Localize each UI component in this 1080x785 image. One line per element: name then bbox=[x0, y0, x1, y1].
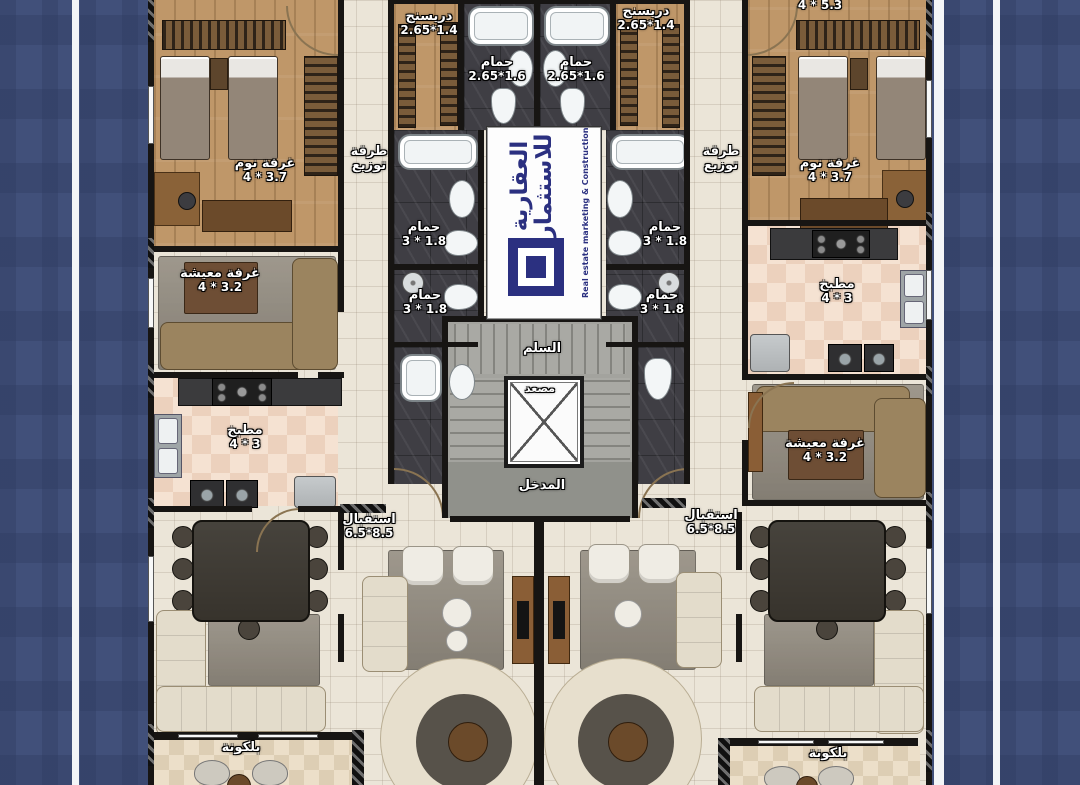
fridge bbox=[294, 476, 336, 508]
window bbox=[148, 278, 154, 328]
label-bath-main-right: حمام 2.65*1.6 bbox=[547, 56, 604, 83]
dining-chair bbox=[172, 590, 194, 612]
room-name: توزيع bbox=[351, 159, 388, 173]
label-kitchen-right: مطبخ 4 * 3 bbox=[819, 278, 854, 305]
hatched-wall bbox=[148, 0, 154, 42]
wall bbox=[606, 342, 690, 347]
tv-console bbox=[202, 200, 292, 232]
hatched-wall bbox=[926, 0, 932, 42]
balcony-chair bbox=[764, 766, 800, 785]
window bbox=[148, 556, 154, 622]
armchair bbox=[402, 546, 444, 586]
balcony-chair bbox=[194, 760, 230, 785]
door-arc bbox=[256, 508, 300, 552]
company-logo-arabic-name: العقارية للاستثمار bbox=[508, 131, 564, 241]
dining-chair bbox=[172, 558, 194, 580]
room-dims: 2.65*1.4 bbox=[400, 24, 457, 37]
dining-chair bbox=[884, 526, 906, 548]
window bbox=[828, 740, 884, 744]
room-name: طرقة bbox=[351, 145, 388, 159]
label-bedroom-right: غرفة نوم 4 * 3.7 bbox=[800, 157, 860, 184]
hatched-wall bbox=[148, 724, 154, 766]
label-bath2-right: حمام 3 * 1.8 bbox=[640, 289, 684, 316]
room-dims: 4 * 3.2 bbox=[785, 451, 865, 464]
room-dims: 4 * 3 bbox=[227, 438, 262, 451]
label-reception-right: استقبال 6.5*8.5 bbox=[684, 509, 737, 536]
bidet bbox=[449, 364, 475, 400]
room-name: بلكونة bbox=[809, 747, 848, 761]
background-building-left bbox=[0, 0, 72, 785]
sofa bbox=[292, 258, 338, 370]
window bbox=[926, 80, 932, 138]
wardrobe bbox=[620, 22, 638, 126]
wardrobe bbox=[796, 20, 920, 50]
label-bath1-right: حمام 3 * 1.8 bbox=[643, 221, 687, 248]
wall bbox=[742, 0, 748, 226]
coffee-table bbox=[608, 722, 648, 762]
closet bbox=[304, 56, 338, 176]
label-reception-left: استقبال 6.5*8.5 bbox=[342, 513, 395, 540]
sofa bbox=[362, 576, 408, 672]
dining-table bbox=[768, 520, 886, 622]
tv-console bbox=[548, 576, 570, 664]
wall bbox=[388, 0, 394, 484]
desk-chair bbox=[896, 190, 914, 208]
label-stairs: السلم bbox=[523, 342, 561, 356]
hatched-wall bbox=[148, 498, 154, 528]
stove bbox=[212, 378, 272, 406]
washer bbox=[828, 344, 862, 372]
coffee-table bbox=[442, 598, 472, 628]
washbasin bbox=[607, 180, 633, 218]
wardrobe bbox=[440, 22, 458, 126]
label-living-right: غرفة معيشة 4 * 3.2 bbox=[785, 437, 865, 464]
room-dims: 4 * 3.7 bbox=[235, 171, 295, 184]
label-living-left: غرفة معيشة 4 * 3.2 bbox=[180, 267, 260, 294]
window bbox=[926, 270, 932, 320]
wall bbox=[394, 342, 478, 347]
background-building-left2 bbox=[80, 0, 148, 785]
label-bath1-left: حمام 3 * 1.8 bbox=[402, 221, 446, 248]
wall bbox=[148, 246, 344, 252]
hatched-wall bbox=[148, 364, 154, 398]
wall bbox=[338, 0, 344, 252]
room-name: السلم bbox=[523, 342, 561, 356]
balcony-chair bbox=[252, 760, 288, 785]
wall bbox=[610, 0, 616, 130]
window bbox=[178, 734, 238, 738]
label-balcony-right: بلكونة bbox=[809, 747, 848, 761]
wall bbox=[736, 614, 742, 662]
background-building-right bbox=[944, 0, 993, 785]
oven bbox=[864, 344, 894, 372]
room-dims: 6.5*8.5 bbox=[342, 527, 395, 540]
wall bbox=[148, 506, 252, 512]
wall bbox=[338, 614, 344, 662]
room-name: طرقة bbox=[703, 145, 740, 159]
wall bbox=[534, 0, 540, 130]
washer bbox=[190, 480, 224, 508]
room-dims: 3 * 1.8 bbox=[640, 303, 684, 316]
bathtub bbox=[544, 6, 610, 46]
kitchen-sink bbox=[900, 270, 928, 328]
label-elevator: مصعد bbox=[525, 383, 555, 395]
armchair bbox=[638, 544, 680, 584]
sofa bbox=[874, 398, 926, 498]
room-name: بلكونة bbox=[222, 741, 261, 755]
fridge bbox=[750, 334, 790, 372]
bed bbox=[160, 56, 210, 160]
label-dressing-left: دريسنج 2.65*1.4 bbox=[400, 10, 457, 37]
window bbox=[148, 86, 154, 144]
hatched-wall bbox=[926, 366, 932, 396]
wall bbox=[632, 322, 638, 518]
bed bbox=[798, 56, 848, 160]
hatched-wall bbox=[352, 730, 364, 785]
label-dims-top-right: 4 * 5.3 bbox=[798, 0, 842, 12]
window bbox=[926, 548, 932, 614]
company-logo-mark bbox=[508, 238, 564, 296]
wall bbox=[458, 0, 464, 130]
white-stripe bbox=[72, 0, 79, 785]
hatched-wall bbox=[718, 738, 730, 785]
coffee-table bbox=[448, 722, 488, 762]
stove bbox=[812, 230, 870, 258]
wall bbox=[742, 440, 748, 506]
wall bbox=[318, 372, 344, 378]
bed bbox=[228, 56, 278, 160]
desk-chair bbox=[178, 192, 196, 210]
label-balcony-left: بلكونة bbox=[222, 741, 261, 755]
tv bbox=[517, 601, 529, 639]
room-dims: 2.65*1.6 bbox=[468, 70, 525, 83]
hatched-wall bbox=[926, 492, 932, 522]
dining-chair bbox=[172, 526, 194, 548]
wall bbox=[606, 264, 690, 270]
floor-plan: العقارية للاستثمار Real estate marketing… bbox=[148, 0, 932, 785]
oven bbox=[226, 480, 258, 508]
wall bbox=[148, 372, 298, 378]
washbasin bbox=[449, 180, 475, 218]
room-dims: 4 * 5.3 bbox=[798, 0, 842, 12]
dining-chair bbox=[884, 558, 906, 580]
bathtub bbox=[610, 134, 690, 170]
window bbox=[758, 740, 814, 744]
bathtub bbox=[468, 6, 534, 46]
room-name: المدخل bbox=[519, 479, 566, 493]
sofa bbox=[160, 322, 306, 370]
label-entrance: المدخل bbox=[519, 479, 566, 493]
white-stripe bbox=[934, 0, 944, 785]
room-dims: 4 * 3 bbox=[819, 292, 854, 305]
wall bbox=[442, 322, 448, 518]
company-logo-english-tagline: Real estate marketing & Construction bbox=[581, 148, 593, 298]
kitchen-sink bbox=[154, 414, 182, 478]
hatched-wall bbox=[926, 730, 932, 772]
wall bbox=[718, 738, 918, 746]
closet bbox=[752, 56, 786, 176]
sofa bbox=[676, 572, 722, 668]
wall bbox=[742, 500, 932, 506]
balcony-chair bbox=[818, 766, 854, 785]
wall bbox=[534, 516, 544, 785]
coffee-table bbox=[614, 600, 642, 628]
white-stripe bbox=[993, 0, 1000, 785]
armchair bbox=[452, 546, 494, 586]
wardrobe bbox=[398, 24, 416, 128]
nightstand bbox=[850, 58, 868, 90]
hatched-wall bbox=[148, 238, 154, 268]
room-dims: 2.65*1.6 bbox=[547, 70, 604, 83]
room-dims: 3 * 1.8 bbox=[643, 235, 687, 248]
label-bedroom-left: غرفة نوم 4 * 3.7 bbox=[235, 157, 295, 184]
wall bbox=[742, 220, 932, 226]
label-kitchen-left: مطبخ 4 * 3 bbox=[227, 424, 262, 451]
rug bbox=[208, 614, 320, 686]
hatched-wall bbox=[642, 498, 686, 508]
wall bbox=[742, 374, 932, 380]
wall bbox=[742, 226, 748, 380]
nightstand bbox=[210, 58, 228, 90]
label-dressing-right: دريسنج 2.65*1.4 bbox=[617, 5, 674, 32]
room-name: مصعد bbox=[525, 383, 555, 395]
wall bbox=[394, 264, 478, 270]
sofa bbox=[754, 686, 924, 732]
room-dims: 3 * 1.8 bbox=[403, 303, 447, 316]
wardrobe bbox=[162, 20, 286, 50]
wall bbox=[338, 252, 344, 312]
background-building-right2 bbox=[1000, 0, 1080, 785]
label-bath-main-left: حمام 2.65*1.6 bbox=[468, 56, 525, 83]
wardrobe bbox=[662, 24, 680, 128]
room-dims: 2.65*1.4 bbox=[617, 19, 674, 32]
side-table bbox=[446, 630, 468, 652]
armchair bbox=[588, 544, 630, 584]
company-logo-mark-inner bbox=[518, 248, 554, 286]
bed bbox=[876, 56, 926, 160]
bathtub bbox=[400, 354, 442, 402]
dining-chair bbox=[884, 590, 906, 612]
room-dims: 3 * 1.8 bbox=[402, 235, 446, 248]
hatched-wall bbox=[926, 212, 932, 242]
tv bbox=[553, 601, 565, 639]
bathtub bbox=[398, 134, 478, 170]
label-bath2-left: حمام 3 * 1.8 bbox=[403, 289, 447, 316]
room-dims: 4 * 3.7 bbox=[800, 171, 860, 184]
room-name: توزيع bbox=[703, 159, 740, 173]
wall bbox=[478, 130, 484, 322]
label-corridor-left: طرقة توزيع bbox=[351, 145, 388, 174]
sofa bbox=[156, 686, 326, 732]
floor-plan-poster: العقارية للاستثمار Real estate marketing… bbox=[0, 0, 1080, 785]
tv-console bbox=[512, 576, 534, 664]
label-corridor-right: طرقة توزيع bbox=[703, 145, 740, 174]
room-dims: 6.5*8.5 bbox=[684, 523, 737, 536]
room-dims: 4 * 3.2 bbox=[180, 281, 260, 294]
company-logo: العقارية للاستثمار Real estate marketing… bbox=[487, 127, 601, 319]
window bbox=[258, 734, 318, 738]
